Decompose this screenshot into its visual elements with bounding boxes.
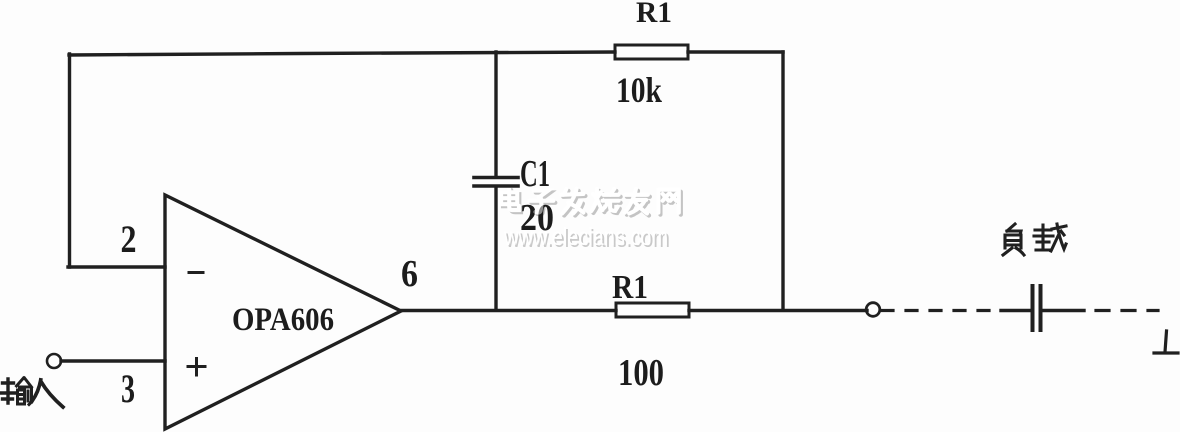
svg-text:3: 3 (121, 366, 135, 411)
svg-text:20: 20 (520, 197, 554, 239)
svg-text:R1: R1 (636, 0, 672, 29)
svg-text:2: 2 (121, 218, 137, 261)
svg-text:OPA606: OPA606 (232, 302, 334, 338)
svg-text:100: 100 (618, 352, 664, 394)
svg-text:6: 6 (401, 253, 418, 295)
svg-text:10k: 10k (616, 70, 662, 110)
svg-text:R1: R1 (612, 269, 648, 306)
